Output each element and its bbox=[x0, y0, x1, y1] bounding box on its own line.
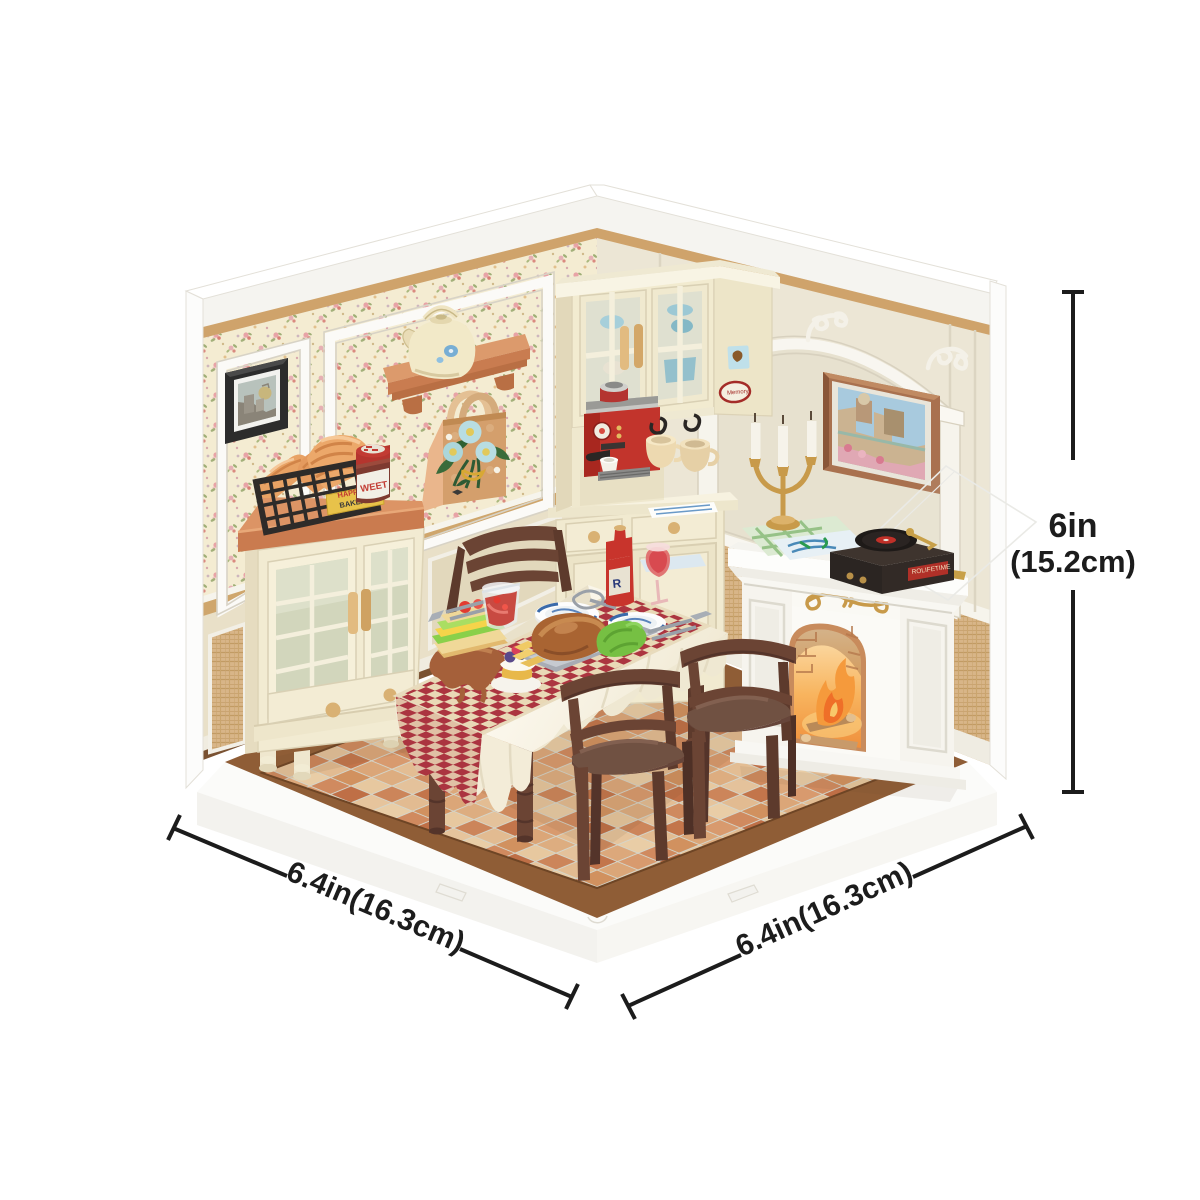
svg-text:R: R bbox=[612, 576, 622, 591]
svg-text:(15.2cm): (15.2cm) bbox=[1010, 544, 1136, 579]
svg-text:6in: 6in bbox=[1048, 507, 1097, 545]
